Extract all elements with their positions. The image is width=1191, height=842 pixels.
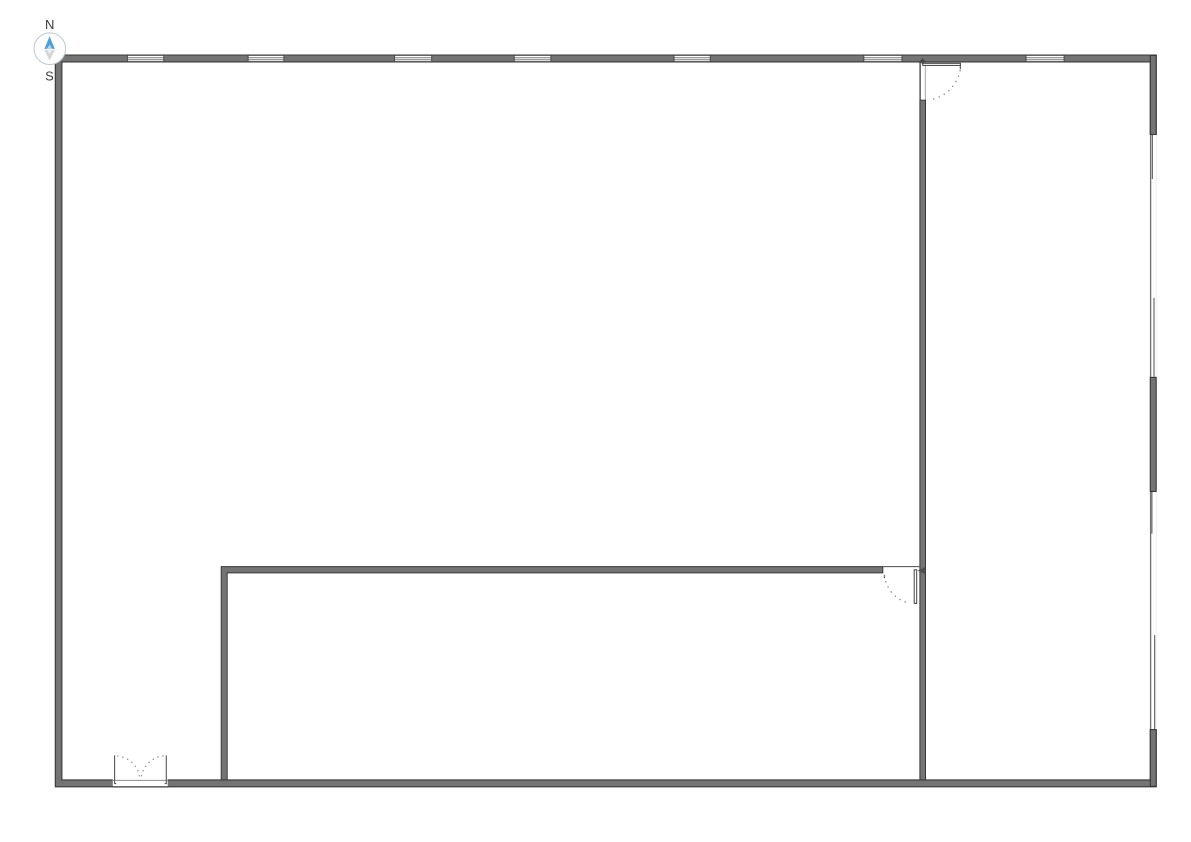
svg-text:S: S — [45, 69, 54, 84]
svg-text:N: N — [45, 17, 54, 32]
